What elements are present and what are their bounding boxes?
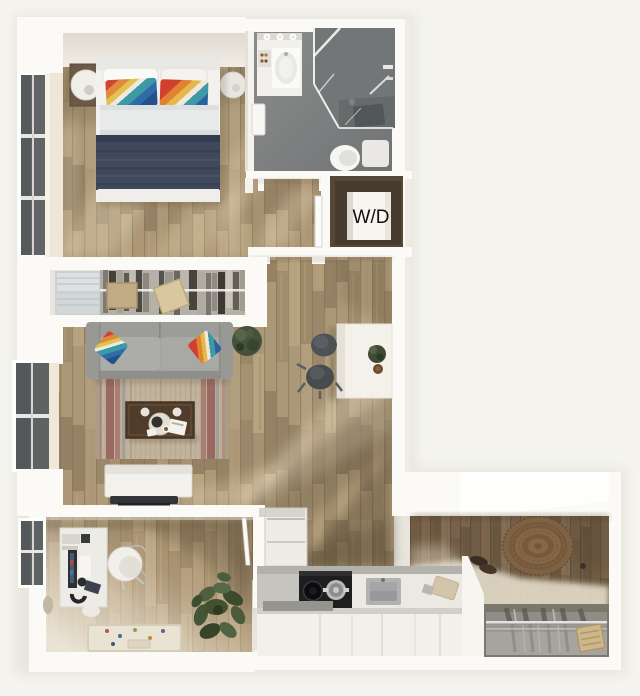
- svg-text:W/D: W/D: [353, 207, 390, 228]
